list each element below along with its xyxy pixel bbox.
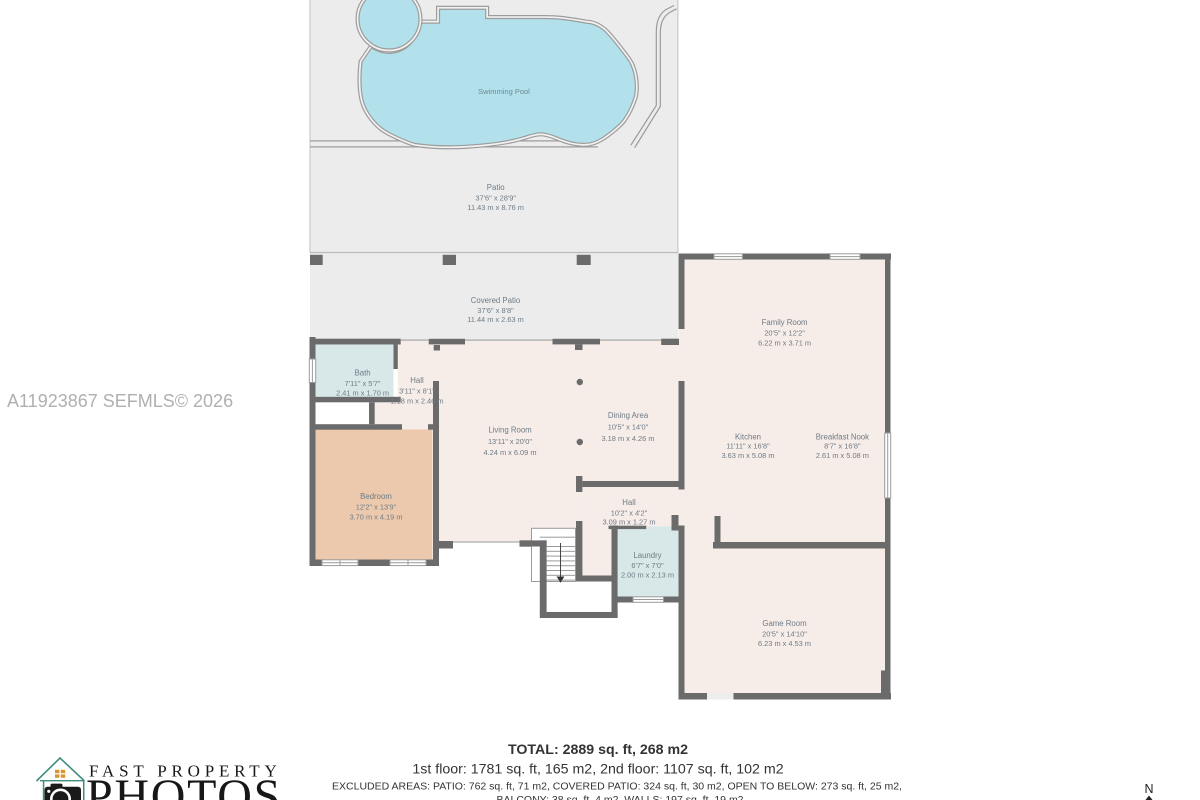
- svg-text:Dining Area: Dining Area: [608, 411, 649, 420]
- svg-text:TOTAL: 2889 sq. ft, 268 m2: TOTAL: 2889 sq. ft, 268 m2: [508, 742, 688, 758]
- svg-text:10'2" x 4'2": 10'2" x 4'2": [611, 509, 648, 518]
- svg-text:6'7" x 7'0": 6'7" x 7'0": [631, 561, 664, 570]
- svg-text:11'11" x 16'8": 11'11" x 16'8": [726, 442, 770, 451]
- svg-text:3.18 m x 4.26 m: 3.18 m x 4.26 m: [602, 434, 655, 443]
- svg-text:Laundry: Laundry: [633, 551, 661, 560]
- svg-text:3.63 m x 5.08 m: 3.63 m x 5.08 m: [722, 451, 775, 460]
- svg-text:2.41 m x 1.70 m: 2.41 m x 1.70 m: [336, 388, 389, 397]
- svg-text:11.43 m x 8.76 m: 11.43 m x 8.76 m: [467, 203, 524, 212]
- svg-text:4.24 m x 6.09 m: 4.24 m x 6.09 m: [484, 448, 537, 457]
- svg-text:1st floor: 1781 sq. ft, 165 m2: 1st floor: 1781 sq. ft, 165 m2, 2nd floo…: [412, 762, 783, 778]
- svg-text:1.18 m x 2.46 m: 1.18 m x 2.46 m: [391, 397, 444, 406]
- svg-text:11.44 m x 2.63 m: 11.44 m x 2.63 m: [467, 315, 524, 324]
- svg-text:10'5" x 14'0": 10'5" x 14'0": [608, 423, 649, 432]
- svg-text:20'5" x 14'10": 20'5" x 14'10": [762, 630, 807, 639]
- svg-text:12'2" x 13'9": 12'2" x 13'9": [356, 503, 397, 512]
- svg-text:3.70 m x 4.19 m: 3.70 m x 4.19 m: [350, 513, 403, 522]
- svg-text:Bedroom: Bedroom: [360, 492, 392, 501]
- svg-text:Family Room: Family Room: [762, 318, 808, 327]
- svg-text:6.23 m x 4.53 m: 6.23 m x 4.53 m: [758, 639, 811, 648]
- svg-text:Breakfast Nook: Breakfast Nook: [816, 433, 869, 442]
- svg-text:37'6" x 28'9": 37'6" x 28'9": [475, 194, 516, 203]
- svg-text:Hall: Hall: [622, 498, 636, 507]
- svg-text:2.61 m x 5.08 m: 2.61 m x 5.08 m: [816, 451, 869, 460]
- svg-text:2.00 m x 2.13 m: 2.00 m x 2.13 m: [621, 571, 674, 580]
- svg-text:PHOTOS: PHOTOS: [86, 770, 282, 800]
- svg-text:7'11" x 5'7": 7'11" x 5'7": [345, 379, 381, 388]
- svg-text:BALCONY: 38 sq. ft, 4 m2, WALL: BALCONY: 38 sq. ft, 4 m2, WALLS: 197 sq.…: [496, 794, 743, 800]
- svg-text:20'5" x 12'2": 20'5" x 12'2": [764, 329, 805, 338]
- svg-text:Swimming Pool: Swimming Pool: [478, 87, 530, 96]
- svg-text:6.22 m x 3.71 m: 6.22 m x 3.71 m: [758, 339, 811, 348]
- svg-text:Covered Patio: Covered Patio: [471, 296, 521, 305]
- svg-text:Bath: Bath: [355, 368, 371, 377]
- svg-text:8'7" x 16'8": 8'7" x 16'8": [824, 442, 861, 451]
- svg-text:Game Room: Game Room: [762, 619, 806, 628]
- svg-text:Living Room: Living Room: [488, 426, 531, 435]
- svg-text:Patio: Patio: [487, 183, 505, 192]
- svg-text:A11923867 SEFMLS© 2026: A11923867 SEFMLS© 2026: [7, 391, 233, 411]
- svg-text:37'6" x 8'8": 37'6" x 8'8": [477, 306, 514, 315]
- svg-text:Hall: Hall: [410, 376, 424, 385]
- svg-text:N: N: [1144, 782, 1153, 796]
- svg-text:EXCLUDED AREAS: PATIO: 762 sq.: EXCLUDED AREAS: PATIO: 762 sq. ft, 71 m2…: [332, 781, 902, 793]
- svg-text:13'11" x 20'0": 13'11" x 20'0": [488, 437, 532, 446]
- svg-text:3.09 m x 1.27 m: 3.09 m x 1.27 m: [603, 518, 656, 527]
- svg-text:Kitchen: Kitchen: [735, 433, 761, 442]
- svg-text:3'11" x 8'1": 3'11" x 8'1": [399, 387, 435, 396]
